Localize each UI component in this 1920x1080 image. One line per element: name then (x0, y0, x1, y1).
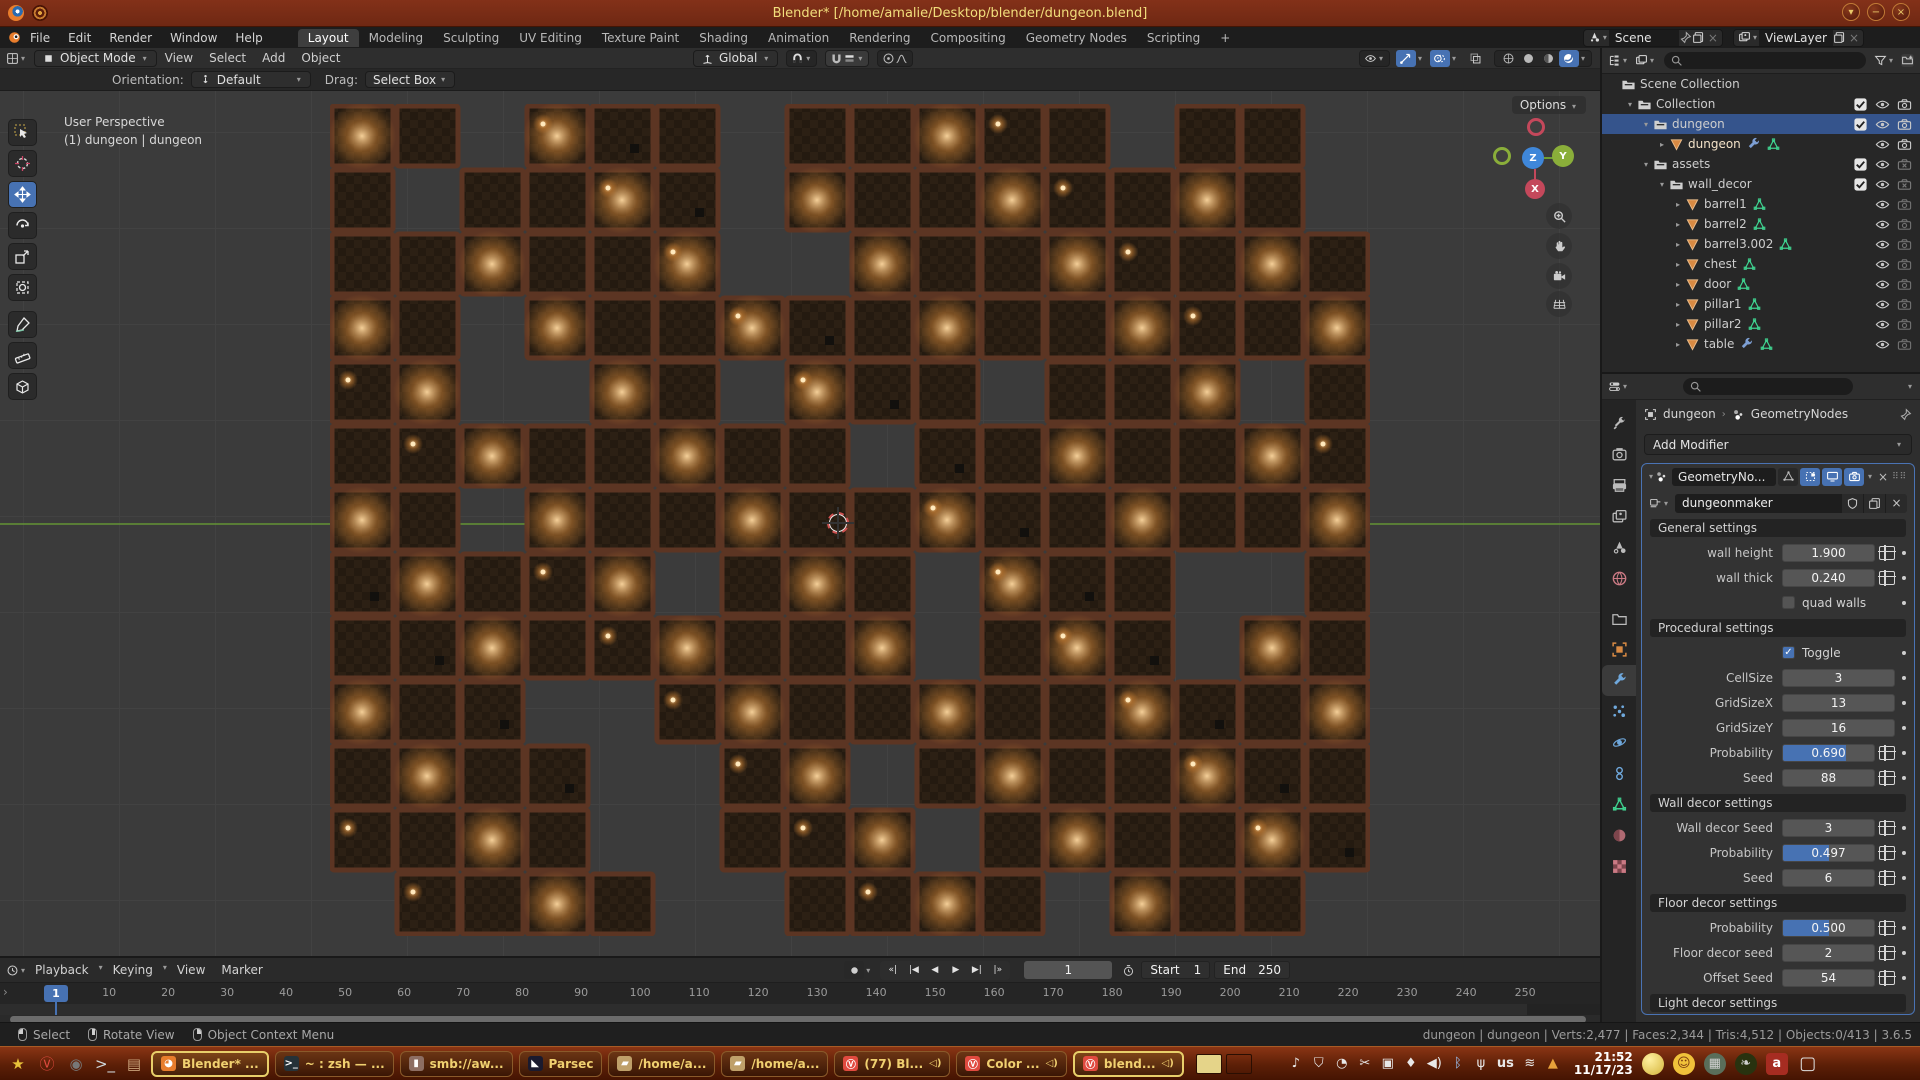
start-frame-field[interactable]: Start1 (1141, 961, 1210, 979)
expander-icon[interactable]: ▸ (1656, 140, 1668, 149)
workspace-tab-uv-editing[interactable]: UV Editing (509, 29, 592, 47)
window-titlebar[interactable]: Blender* [/home/amalie/Desktop/blender/d… (0, 0, 1920, 27)
snapping-group[interactable]: ▾ (786, 50, 817, 67)
outliner-row-assets[interactable]: ▾assets (1602, 154, 1920, 174)
tool-add-cube[interactable] (8, 373, 37, 400)
properties-tab-object[interactable] (1602, 634, 1636, 665)
properties-tab-output[interactable] (1602, 470, 1636, 501)
camera-off-toggle[interactable] (1897, 177, 1914, 192)
pause-tray-icon[interactable]: ▣ (1381, 1056, 1395, 1071)
pin-icon[interactable] (1899, 408, 1912, 421)
circle-tray-icon[interactable]: ◔ (1335, 1056, 1349, 1071)
workspace-tab-compositing[interactable]: Compositing (920, 29, 1015, 47)
terminal-launcher-icon[interactable]: >_ (94, 1053, 116, 1075)
field-value: 54 (1821, 971, 1836, 985)
options-button[interactable]: Options ▾ (1512, 96, 1586, 114)
input-attribute-icon[interactable] (1879, 871, 1895, 885)
camera-toggle[interactable] (1897, 137, 1914, 152)
proportional-edit-group[interactable] (877, 50, 913, 67)
properties-tab-modifiers[interactable] (1602, 665, 1636, 696)
modifier-row-offset-seed: Offset Seed54 (1642, 965, 1914, 990)
modifier-render-toggle[interactable] (1844, 468, 1864, 486)
eye-toggle[interactable] (1875, 137, 1892, 152)
row-label: wall height (1642, 546, 1782, 560)
outliner-row-barrel3-002[interactable]: ▸barrel3.002 (1602, 234, 1920, 254)
breadcrumb-object[interactable]: dungeon (1663, 407, 1716, 421)
book-icon[interactable]: a (1766, 1053, 1788, 1075)
clock-icon (1122, 964, 1135, 977)
collapse-chevron-icon[interactable]: ▾ (1649, 472, 1653, 481)
current-frame-field[interactable]: 1 (1024, 961, 1112, 979)
camera-dim-toggle[interactable] (1897, 257, 1914, 272)
section-header-floor-decor-settings[interactable]: Floor decor settings (1650, 894, 1906, 912)
tool-settings-bar: Orientation: Default ▾ Drag: Select Box … (0, 69, 1600, 91)
tool-transform[interactable] (8, 274, 37, 301)
minimize-button[interactable]: − (1867, 3, 1885, 21)
outliner-row-pillar1[interactable]: ▸pillar1 (1602, 294, 1920, 314)
scissors-tray-icon[interactable]: ✂ (1358, 1056, 1372, 1071)
mesh-icon (1685, 237, 1700, 252)
blender-icon: ◕ (161, 1056, 176, 1071)
play-button[interactable]: ▶ (945, 962, 966, 979)
plant-icon[interactable]: ❧ (1735, 1053, 1757, 1075)
remove-viewlayer-icon[interactable]: × (1849, 31, 1859, 45)
outliner-row-door[interactable]: ▸door (1602, 274, 1920, 294)
modifier-on-cage-toggle[interactable] (1778, 468, 1798, 486)
overlays-toggle[interactable] (1430, 50, 1450, 67)
snap-icon[interactable] (791, 52, 804, 65)
display-mode-icon[interactable] (1635, 54, 1648, 67)
properties-tab-viewlayer[interactable] (1602, 501, 1636, 532)
decorator-dot[interactable] (1902, 651, 1906, 655)
hint-label: Select (33, 1028, 70, 1042)
workspace-tab-shading[interactable]: Shading (689, 29, 758, 47)
shading-material-button[interactable] (1539, 50, 1559, 67)
disc-launcher-icon[interactable]: ◉ (65, 1053, 87, 1075)
camera-view-icon[interactable] (1546, 263, 1572, 289)
task-homea[interactable]: ▰/home/a... (721, 1051, 828, 1077)
wall-decor-seed-field[interactable]: 3 (1782, 819, 1875, 837)
zoom-icon[interactable] (1546, 203, 1572, 229)
new-scene-icon[interactable] (1692, 31, 1705, 44)
properties-tab-data[interactable] (1602, 789, 1636, 820)
nodetree-icon (1736, 277, 1751, 292)
expander-icon[interactable]: ▾ (1656, 180, 1668, 189)
app-menu-render[interactable]: Render (100, 31, 161, 45)
properties-tab-constraints[interactable] (1602, 758, 1636, 789)
outliner-editor-icon[interactable] (1608, 54, 1621, 67)
camera-dim-toggle[interactable] (1897, 277, 1914, 292)
xray-toggle[interactable] (1466, 50, 1486, 67)
gridsizex-field[interactable]: 13 (1782, 694, 1895, 712)
task-blender[interactable]: ◕Blender* ... (151, 1051, 269, 1077)
tool-scale[interactable] (8, 243, 37, 270)
copy-node-group-button[interactable] (1863, 494, 1885, 513)
eye-toggle[interactable] (1875, 197, 1892, 212)
camera-off-toggle[interactable] (1897, 157, 1914, 172)
decorator-dot[interactable] (1902, 751, 1906, 755)
expander-icon[interactable]: ▸ (1672, 240, 1684, 249)
viewport-menu-select[interactable]: Select (201, 51, 254, 65)
tool-cursor[interactable] (8, 150, 37, 177)
expander-icon[interactable]: ▸ (1672, 280, 1684, 289)
gizmo-x-ball[interactable]: X (1525, 179, 1545, 199)
section-header-general-settings[interactable]: General settings (1650, 519, 1906, 537)
task-77bl[interactable]: Ⓥ(77) Bl...◁) (834, 1051, 950, 1077)
outliner-row-wall_decor[interactable]: ▾wall_decor (1602, 174, 1920, 194)
outliner-item-label: pillar1 (1704, 297, 1742, 311)
window-icon[interactable]: ▢ (1797, 1053, 1819, 1075)
pin-icon[interactable] (1679, 31, 1692, 44)
camera-toggle[interactable] (1897, 97, 1914, 112)
expander-icon[interactable]: ▸ (1672, 300, 1684, 309)
collection-icon (1653, 117, 1668, 132)
expander-icon[interactable]: ▾ (1640, 120, 1652, 129)
shading-wireframe-button[interactable] (1499, 50, 1519, 67)
eye-toggle[interactable] (1875, 97, 1892, 112)
camera-dim-toggle[interactable] (1897, 237, 1914, 252)
audio-playing-icon: ◁) (929, 1058, 941, 1069)
tool-move[interactable] (8, 181, 37, 208)
chevron-down-icon: ▾ (1623, 382, 1627, 391)
tool-rotate[interactable] (8, 212, 37, 239)
warning-tray-icon[interactable]: ▲ (1546, 1056, 1560, 1071)
wall-thick-field[interactable]: 0.240 (1782, 569, 1875, 587)
outliner-row-chest[interactable]: ▸chest (1602, 254, 1920, 274)
gizmo-y-ball[interactable]: Y (1552, 145, 1574, 167)
gizmo-negx-ball[interactable] (1527, 118, 1545, 136)
properties-tab-world[interactable] (1602, 563, 1636, 594)
workspace-tab-layout[interactable]: Layout (298, 29, 359, 47)
input-attribute-icon[interactable] (1879, 846, 1895, 860)
blender-logo-icon[interactable] (8, 31, 21, 44)
timeline-menu-keying[interactable]: Keying (105, 963, 161, 977)
wifi-tray-icon[interactable]: ≋ (1523, 1056, 1537, 1071)
mesh-icon (1669, 137, 1684, 152)
field-value: 3 (1835, 671, 1843, 685)
seed-field[interactable]: 88 (1782, 769, 1875, 787)
section-header-wall-decor-settings[interactable]: Wall decor settings (1650, 794, 1906, 812)
input-attribute-icon[interactable] (1879, 746, 1895, 760)
new-viewlayer-icon[interactable] (1833, 31, 1846, 44)
workspace-tab-geometry-nodes[interactable]: Geometry Nodes (1016, 29, 1137, 47)
row-label: Probability (1642, 921, 1782, 935)
add-modifier-button[interactable]: Add Modifier ▾ (1644, 434, 1912, 455)
expander-icon[interactable]: ▸ (1672, 320, 1684, 329)
eye-toggle[interactable] (1875, 337, 1892, 352)
filter-icon[interactable] (1874, 54, 1887, 67)
ball-icon[interactable] (1642, 1053, 1664, 1075)
task-zsh[interactable]: >_~ : zsh — ... (275, 1051, 394, 1077)
mic-tray-icon[interactable]: ♦ (1404, 1056, 1418, 1071)
pan-hand-icon[interactable] (1546, 233, 1572, 259)
tool-measure[interactable] (8, 342, 37, 369)
app-menu-help[interactable]: Help (226, 31, 271, 45)
calculator-icon[interactable]: ▦ (1704, 1053, 1726, 1075)
usb-tray-icon[interactable]: ψ (1474, 1056, 1488, 1071)
eye-toggle[interactable] (1875, 317, 1892, 332)
collection-icon (1669, 177, 1684, 192)
properties-search-input[interactable] (1683, 378, 1853, 395)
playhead-current-frame[interactable]: 1 (44, 985, 68, 1002)
workspace-tab-modeling[interactable]: Modeling (359, 29, 434, 47)
star-launcher-icon[interactable]: ★ (7, 1053, 29, 1075)
app-menu-file[interactable]: File (21, 31, 59, 45)
end-frame-field[interactable]: End250 (1214, 961, 1290, 979)
prev-keyframe-button[interactable]: |◀ (903, 962, 924, 979)
app-menu-edit[interactable]: Edit (59, 31, 100, 45)
add-workspace-button[interactable]: + (1210, 29, 1240, 47)
camera-toggle[interactable] (1897, 117, 1914, 132)
vivaldi-launcher-icon[interactable]: Ⓥ (36, 1053, 58, 1075)
chevron-down-icon: ▾ (21, 966, 25, 975)
decorator-dot[interactable] (1902, 951, 1906, 955)
decorator-dot[interactable] (1902, 851, 1906, 855)
app-menu-window[interactable]: Window (161, 31, 226, 45)
eye-toggle[interactable] (1875, 277, 1892, 292)
shading-solid-button[interactable] (1519, 50, 1539, 67)
camera-dim-toggle[interactable] (1897, 297, 1914, 312)
auto-key-record-button[interactable] (844, 961, 864, 979)
jump-start-button[interactable]: «| (882, 962, 903, 979)
fake-user-shield-button[interactable] (1841, 494, 1863, 513)
decorator-dot[interactable] (1902, 676, 1906, 680)
expander-icon[interactable]: ▸ (1672, 200, 1684, 209)
wall-height-field[interactable]: 1.900 (1782, 544, 1875, 562)
clock[interactable]: 21:52 11/17/23 (1574, 1051, 1633, 1077)
section-header-procedural-settings[interactable]: Procedural settings (1650, 619, 1906, 637)
collection-icon (1621, 77, 1636, 92)
outliner-row-Scene-Collection[interactable]: Scene Collection (1602, 74, 1920, 94)
unlink-scene-icon[interactable]: × (1708, 31, 1718, 45)
modifier-realtime-toggle[interactable] (1822, 468, 1842, 486)
decorator-dot[interactable] (1902, 976, 1906, 980)
probability-field[interactable]: 0.690 (1782, 744, 1875, 762)
jump-end-button[interactable]: |» (987, 962, 1008, 979)
outliner-row-table[interactable]: ▸table (1602, 334, 1920, 354)
eye-toggle[interactable] (1875, 297, 1892, 312)
expander-icon[interactable]: ▸ (1672, 220, 1684, 229)
timeline-menu-view[interactable]: View (169, 963, 213, 977)
check-toggle[interactable] (1853, 177, 1870, 192)
input-attribute-icon[interactable] (1879, 971, 1895, 985)
input-attribute-icon[interactable] (1879, 946, 1895, 960)
properties-tab-texture[interactable] (1602, 851, 1636, 882)
viewport-menu-object[interactable]: Object (293, 51, 348, 65)
workspace-tab-rendering[interactable]: Rendering (839, 29, 920, 47)
offset-seed-field[interactable]: 54 (1782, 969, 1875, 987)
outliner-tree: Scene Collection▾Collection▾dungeon▸dung… (1602, 74, 1920, 354)
decorator-dot[interactable] (1902, 926, 1906, 930)
properties-tab-physics[interactable] (1602, 727, 1636, 758)
chevron-down-icon: ▾ (1603, 33, 1607, 42)
decorator-dot[interactable] (1902, 726, 1906, 730)
expander-icon[interactable]: ▾ (1624, 100, 1636, 109)
shading-rendered-button[interactable] (1559, 50, 1579, 67)
viewport-menu-view[interactable]: View (157, 51, 201, 65)
probability-field[interactable]: 0.500 (1782, 919, 1875, 937)
kbd-tray-icon[interactable]: us (1497, 1056, 1514, 1071)
visibility-group[interactable]: ▾ (1359, 50, 1390, 67)
orientation-default-dropdown[interactable]: Default ▾ (191, 71, 311, 88)
new-collection-button[interactable] (1901, 54, 1914, 67)
right-mouse-icon (193, 1028, 202, 1041)
close-button[interactable]: × (1892, 3, 1910, 21)
expander-icon[interactable]: ▾ (1640, 160, 1652, 169)
task-smbaw[interactable]: ▮smb://aw... (400, 1051, 513, 1077)
expander-icon[interactable]: ▸ (1672, 340, 1684, 349)
decorator-dot[interactable] (1902, 576, 1906, 580)
breadcrumb-modifier[interactable]: GeometryNodes (1751, 407, 1848, 421)
eye-toggle[interactable] (1875, 117, 1892, 132)
gridsizey-field[interactable]: 16 (1782, 719, 1895, 737)
bluetooth-tray-icon[interactable]: ᛒ (1451, 1056, 1465, 1071)
decorator-dot[interactable] (1902, 826, 1906, 830)
workspace-2[interactable] (1226, 1054, 1252, 1074)
viewlayer-name[interactable]: ViewLayer (1759, 30, 1833, 46)
outliner-search-input[interactable] (1664, 52, 1866, 69)
modifier-row-seed: Seed88 (1642, 765, 1914, 790)
eye-toggle[interactable] (1875, 177, 1892, 192)
magnet-toggle[interactable]: ▾ (825, 50, 869, 67)
gizmos-toggle[interactable] (1396, 50, 1416, 67)
timeline-track-strip[interactable] (0, 1004, 1600, 1015)
timeline-editor-icon[interactable] (6, 964, 19, 977)
properties-tab-tool[interactable] (1602, 408, 1636, 439)
section-header-light-decor-settings[interactable]: Light decor settings (1650, 994, 1906, 1012)
floor-decor-seed-field[interactable]: 2 (1782, 944, 1875, 962)
volume-tray-icon[interactable]: ◀) (1427, 1056, 1442, 1071)
properties-tab-particles[interactable] (1602, 696, 1636, 727)
scene-selector[interactable]: ▾ Scene × (1583, 29, 1723, 47)
eye-toggle[interactable] (1875, 157, 1892, 172)
scene-name[interactable]: Scene (1609, 30, 1679, 46)
properties-tab-material[interactable] (1602, 820, 1636, 851)
workspace-tab-scripting[interactable]: Scripting (1137, 29, 1210, 47)
timeline-menu-playback[interactable]: Playback (27, 963, 97, 977)
expander-icon[interactable]: ▸ (1672, 260, 1684, 269)
tool-annotate[interactable] (8, 311, 37, 338)
outliner-row-pillar2[interactable]: ▸pillar2 (1602, 314, 1920, 334)
3d-viewport[interactable]: User Perspective (1) dungeon | dungeon O… (0, 91, 1600, 956)
modifier-editmode-toggle[interactable] (1800, 468, 1820, 486)
gizmo-negy-ball[interactable] (1493, 147, 1511, 165)
viewlayer-selector[interactable]: ▾ ViewLayer × (1733, 29, 1864, 47)
decorator-dot[interactable] (1902, 601, 1906, 605)
mode-dropdown[interactable]: Object Mode ▾ (34, 50, 157, 67)
input-attribute-icon[interactable] (1879, 821, 1895, 835)
drag-handle-icon[interactable]: ⠿⠿ (1892, 472, 1907, 482)
shield-tray-icon[interactable]: ⛉ (1312, 1056, 1326, 1071)
properties-tab-collection[interactable] (1602, 603, 1636, 634)
quad-walls-checkbox[interactable] (1782, 596, 1795, 609)
check-toggle[interactable] (1853, 117, 1870, 132)
cellsize-field[interactable]: 3 (1782, 669, 1895, 687)
tray-right-icons: ☺▦❧a▢ (1633, 1053, 1819, 1075)
outliner-row-barrel2[interactable]: ▸barrel2 (1602, 214, 1920, 234)
drag-dropdown[interactable]: Select Box ▾ (365, 71, 455, 88)
camera-dim-toggle[interactable] (1897, 337, 1914, 352)
outliner-row-barrel1[interactable]: ▸barrel1 (1602, 194, 1920, 214)
smiley-icon[interactable]: ☺ (1673, 1053, 1695, 1075)
check-toggle[interactable] (1853, 157, 1870, 172)
row-label: Floor decor seed (1642, 946, 1782, 960)
camera-dim-toggle[interactable] (1897, 217, 1914, 232)
timeline-menu-marker[interactable]: Marker (213, 963, 270, 977)
vivaldi-icon: Ⓥ (843, 1056, 858, 1071)
decorator-dot[interactable] (1902, 551, 1906, 555)
properties-tab-scene[interactable] (1602, 532, 1636, 563)
frame-tick-140: 140 (866, 986, 887, 999)
camera-dim-toggle[interactable] (1897, 317, 1914, 332)
input-attribute-icon[interactable] (1879, 771, 1895, 785)
decorator-dot[interactable] (1902, 776, 1906, 780)
play-reverse-button[interactable]: ◀ (924, 962, 945, 979)
workspace-tab-texture-paint[interactable]: Texture Paint (592, 29, 689, 47)
camera-dim-toggle[interactable] (1897, 197, 1914, 212)
task-homea[interactable]: ▰/home/a... (608, 1051, 715, 1077)
editor-type-icon[interactable] (6, 52, 19, 65)
decorator-dot[interactable] (1902, 701, 1906, 705)
viewport-menu-add[interactable]: Add (254, 51, 293, 65)
input-attribute-icon[interactable] (1879, 921, 1895, 935)
modifier-delete-button[interactable]: × (1878, 470, 1888, 484)
properties-editor-icon[interactable] (1608, 380, 1621, 393)
input-attribute-icon[interactable] (1879, 571, 1895, 585)
next-keyframe-button[interactable]: ▶| (966, 962, 987, 979)
tool-select-box[interactable] (8, 119, 37, 146)
task-blend[interactable]: Ⓥblend...◁) (1073, 1051, 1184, 1077)
frame-tick-150: 150 (925, 986, 946, 999)
timeline-ruler[interactable]: › 1 102030405060708090100110120130140150… (0, 982, 1600, 1004)
outliner-row-Collection[interactable]: ▾Collection (1602, 94, 1920, 114)
properties-tab-render[interactable] (1602, 439, 1636, 470)
outliner-row-dungeon[interactable]: ▾dungeon (1602, 114, 1920, 134)
orientation-label: Global (719, 51, 757, 65)
chevron-down-icon: ▾ (21, 54, 25, 63)
seed-field[interactable]: 6 (1782, 869, 1875, 887)
chevron-down-icon: ▾ (1418, 54, 1422, 63)
eye-toggle[interactable] (1875, 257, 1892, 272)
gizmo-z-ball[interactable]: Z (1522, 147, 1544, 169)
node-group-name-field[interactable]: dungeonmaker (1675, 494, 1841, 513)
outliner-row-dungeon[interactable]: ▸dungeon (1602, 134, 1920, 154)
task-color[interactable]: ⓋColor ...◁) (956, 1051, 1066, 1077)
expand-arrow-icon[interactable]: › (3, 985, 8, 999)
check-toggle[interactable] (1853, 97, 1870, 112)
eye-toggle[interactable] (1875, 237, 1892, 252)
music-tray-icon[interactable]: ♪ (1289, 1056, 1303, 1071)
orientation-dropdown[interactable]: Global ▾ (693, 50, 778, 67)
ortho-grid-icon[interactable] (1546, 291, 1572, 317)
task-parsec[interactable]: ◣Parsec (519, 1051, 603, 1077)
modifier-name-field[interactable]: GeometryNo... (1672, 468, 1776, 486)
drawer-launcher-icon[interactable]: ▤ (123, 1053, 145, 1075)
probability-field[interactable]: 0.497 (1782, 844, 1875, 862)
unlink-node-group-button[interactable]: × (1885, 494, 1907, 513)
workspace-1[interactable] (1196, 1054, 1222, 1074)
chevron-down-icon: ▾ (1581, 54, 1585, 63)
decorator-dot[interactable] (1902, 876, 1906, 880)
workspace-tab-sculpting[interactable]: Sculpting (433, 29, 509, 47)
workspace-tab-animation[interactable]: Animation (758, 29, 839, 47)
timeline-header: ▾ Playback▾Keying▾ViewMarker ▾ «||◀◀▶▶||… (0, 958, 1600, 982)
eye-toggle[interactable] (1875, 217, 1892, 232)
window-menu-button[interactable]: ▾ (1842, 3, 1860, 21)
modifier-extras-chevron[interactable]: ▾ (1868, 472, 1872, 481)
toggle-checkbox[interactable]: ✓ (1782, 646, 1795, 659)
input-attribute-icon[interactable] (1879, 546, 1895, 560)
